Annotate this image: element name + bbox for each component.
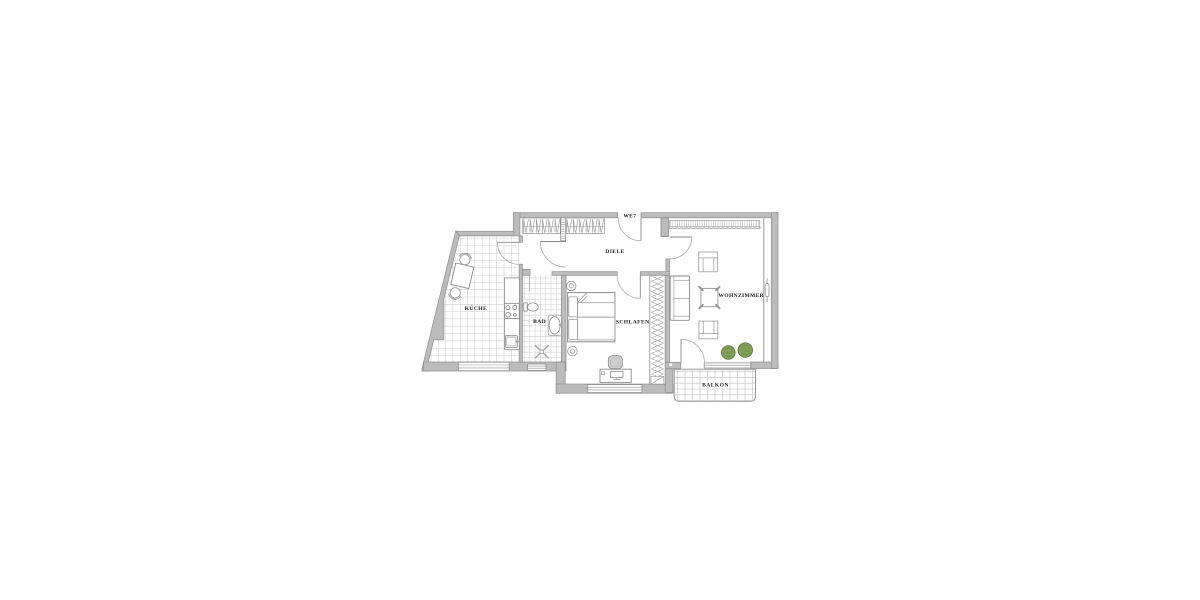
svg-text:WOHNZIMMER: WOHNZIMMER xyxy=(718,293,764,299)
svg-text:BALKON: BALKON xyxy=(702,382,729,388)
svg-text:WE7: WE7 xyxy=(623,213,636,219)
svg-text:DIELE: DIELE xyxy=(605,249,624,255)
svg-text:SCHLAFEN: SCHLAFEN xyxy=(616,320,650,326)
svg-text:BAD: BAD xyxy=(533,319,546,325)
svg-text:KÜCHE: KÜCHE xyxy=(465,305,488,312)
